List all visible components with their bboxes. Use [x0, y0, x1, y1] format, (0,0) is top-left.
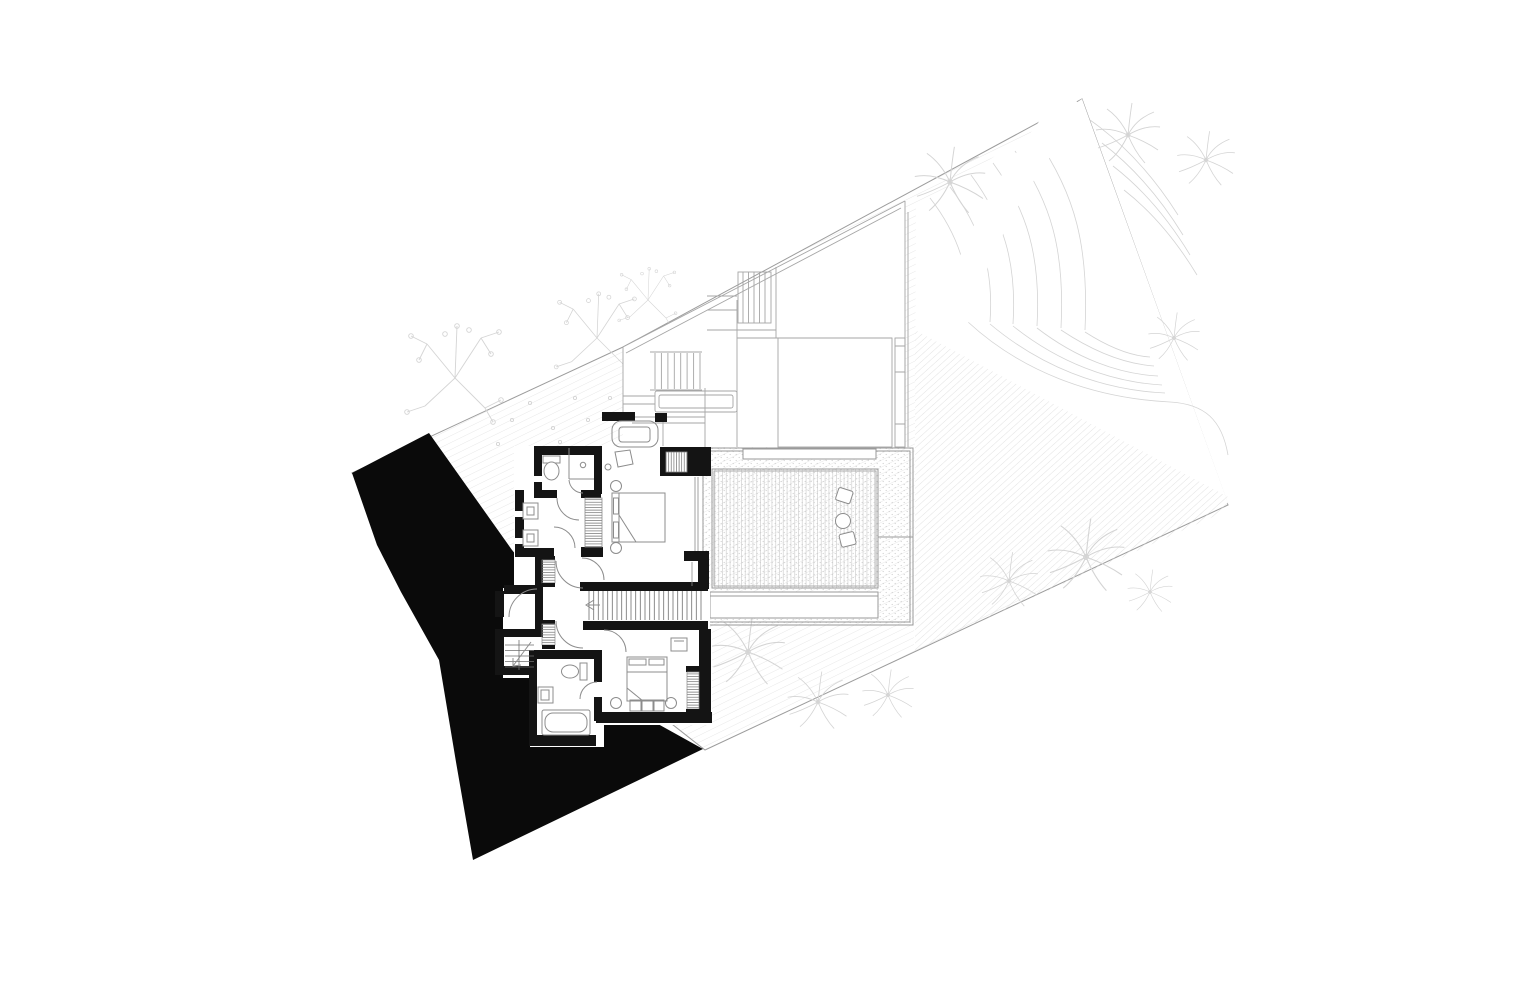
wardrobe: [666, 452, 687, 472]
floor-plan-page: [0, 0, 1536, 994]
wardrobe: [585, 498, 602, 547]
sink: [538, 687, 553, 703]
bathtub: [542, 710, 590, 735]
toilet: [543, 456, 560, 480]
deck-beam: [743, 449, 876, 459]
deck-boards: [712, 469, 878, 588]
vanity-basin: [523, 503, 538, 519]
floor-plan-drawing: [0, 0, 1536, 994]
pool-deck: [700, 448, 913, 625]
toilet: [562, 663, 588, 680]
vanity-basin: [523, 530, 538, 546]
